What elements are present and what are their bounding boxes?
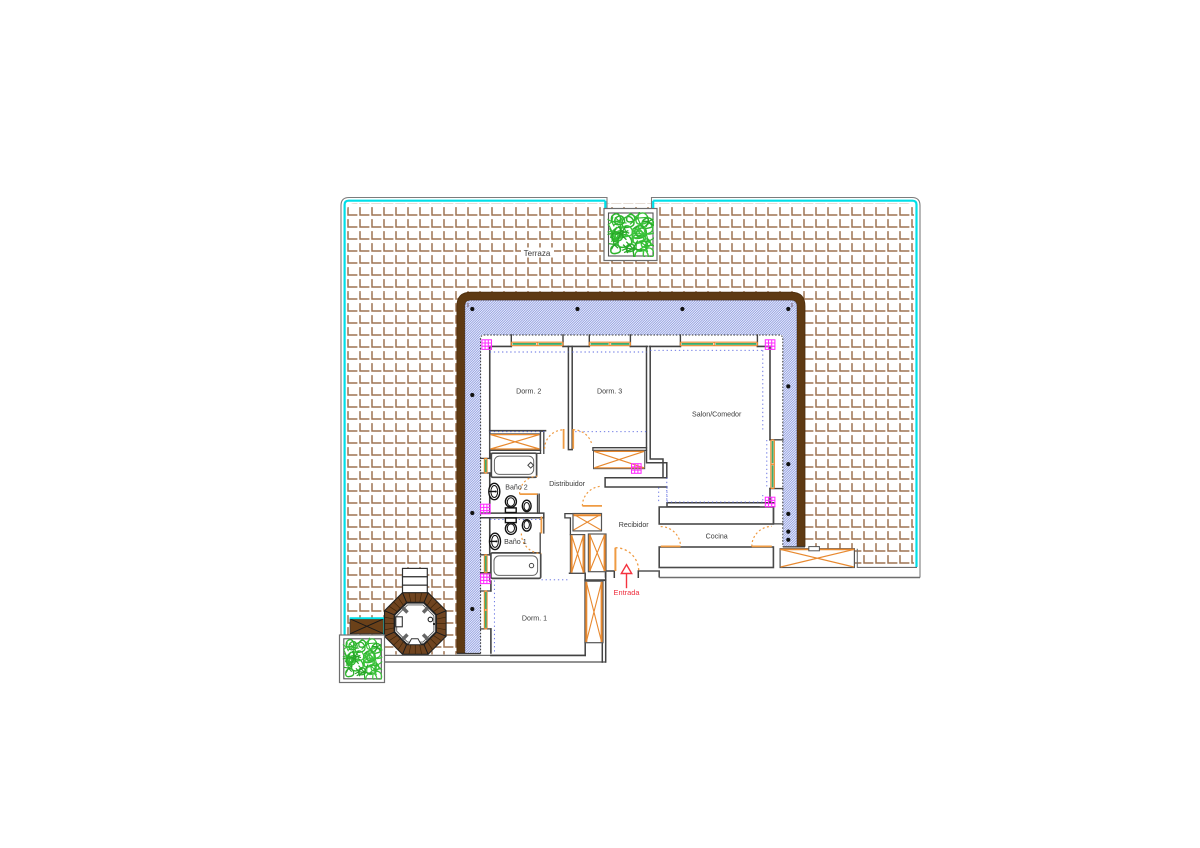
svg-text:Cocina: Cocina	[706, 533, 728, 541]
svg-text:Entrada: Entrada	[614, 588, 641, 597]
svg-text:Terraza: Terraza	[524, 249, 551, 258]
svg-text:Recibidor: Recibidor	[619, 521, 650, 529]
svg-text:Salon/Comedor: Salon/Comedor	[692, 411, 742, 419]
svg-text:Dorm. 1: Dorm. 1	[522, 614, 547, 622]
svg-text:Baño 2: Baño 2	[505, 483, 528, 491]
svg-text:Dorm. 2: Dorm. 2	[516, 388, 541, 396]
svg-text:Distribuidor: Distribuidor	[549, 480, 586, 488]
svg-text:Dorm. 3: Dorm. 3	[597, 388, 622, 396]
svg-text:Baño 1: Baño 1	[504, 538, 527, 546]
